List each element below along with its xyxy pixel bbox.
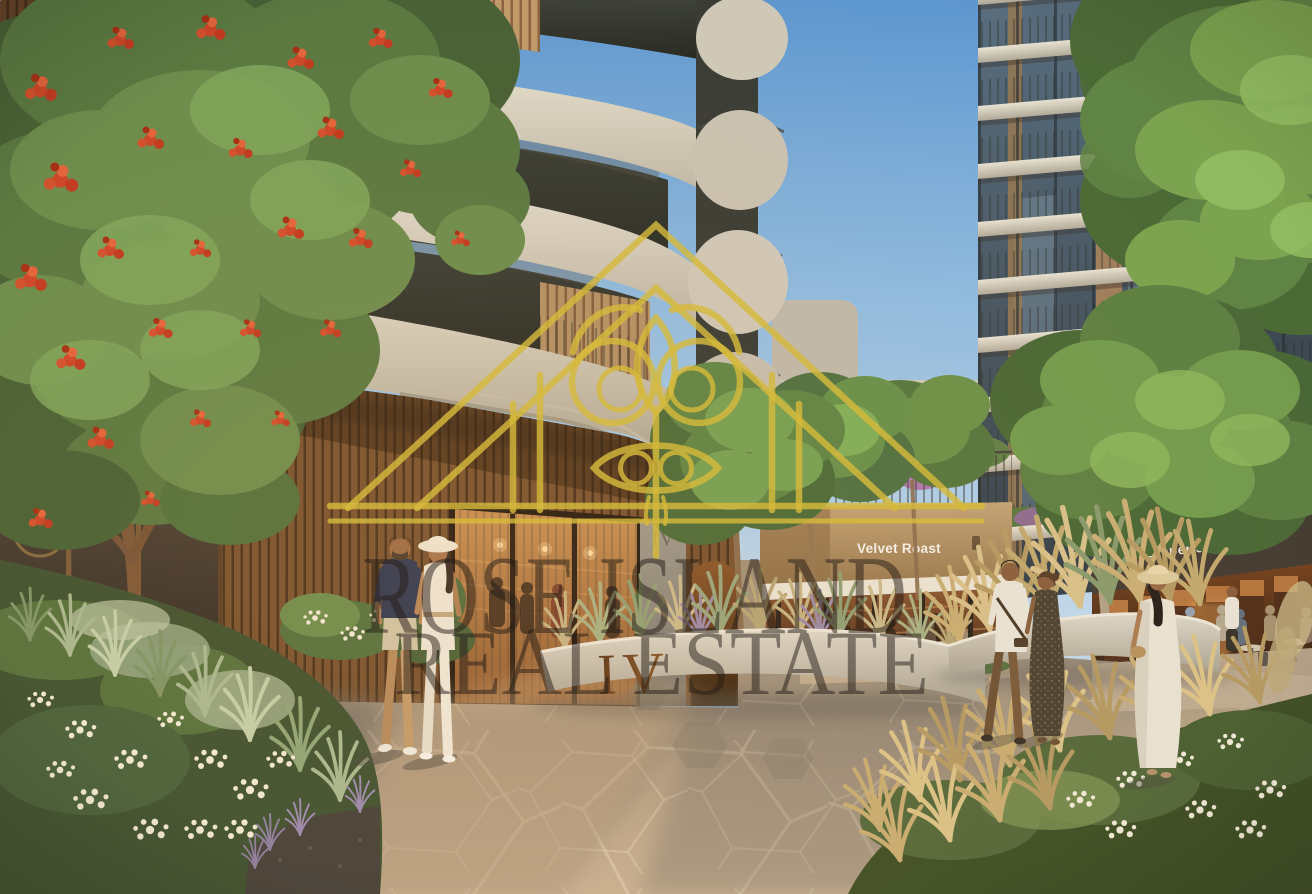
watermark-title: ROSE ISLAND REAL ESTATE [362,534,929,714]
watermark-line2: REAL ESTATE [394,612,929,714]
rendering-scene: IV Velvet Roast [0,0,1312,894]
architectural-rendering: IV Velvet Roast [0,0,1312,894]
